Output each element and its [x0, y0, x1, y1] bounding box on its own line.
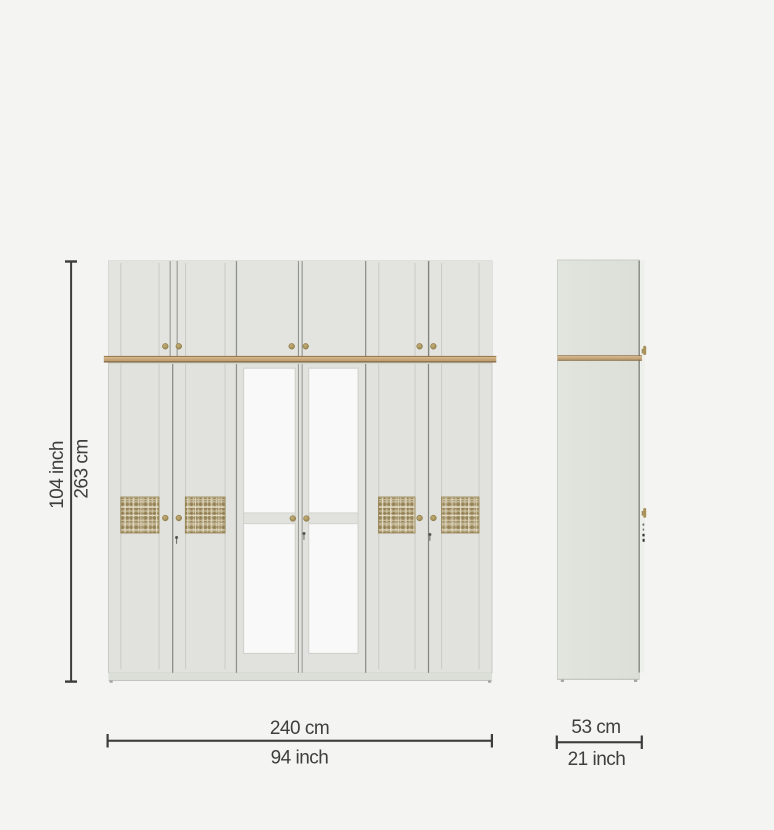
svg-text:104 inch: 104 inch — [47, 441, 68, 509]
svg-text:94 inch: 94 inch — [271, 748, 329, 769]
svg-text:240 cm: 240 cm — [270, 718, 329, 739]
svg-text:53 cm: 53 cm — [571, 717, 620, 738]
svg-text:263 cm: 263 cm — [72, 439, 93, 498]
svg-text:21 inch: 21 inch — [568, 749, 626, 770]
